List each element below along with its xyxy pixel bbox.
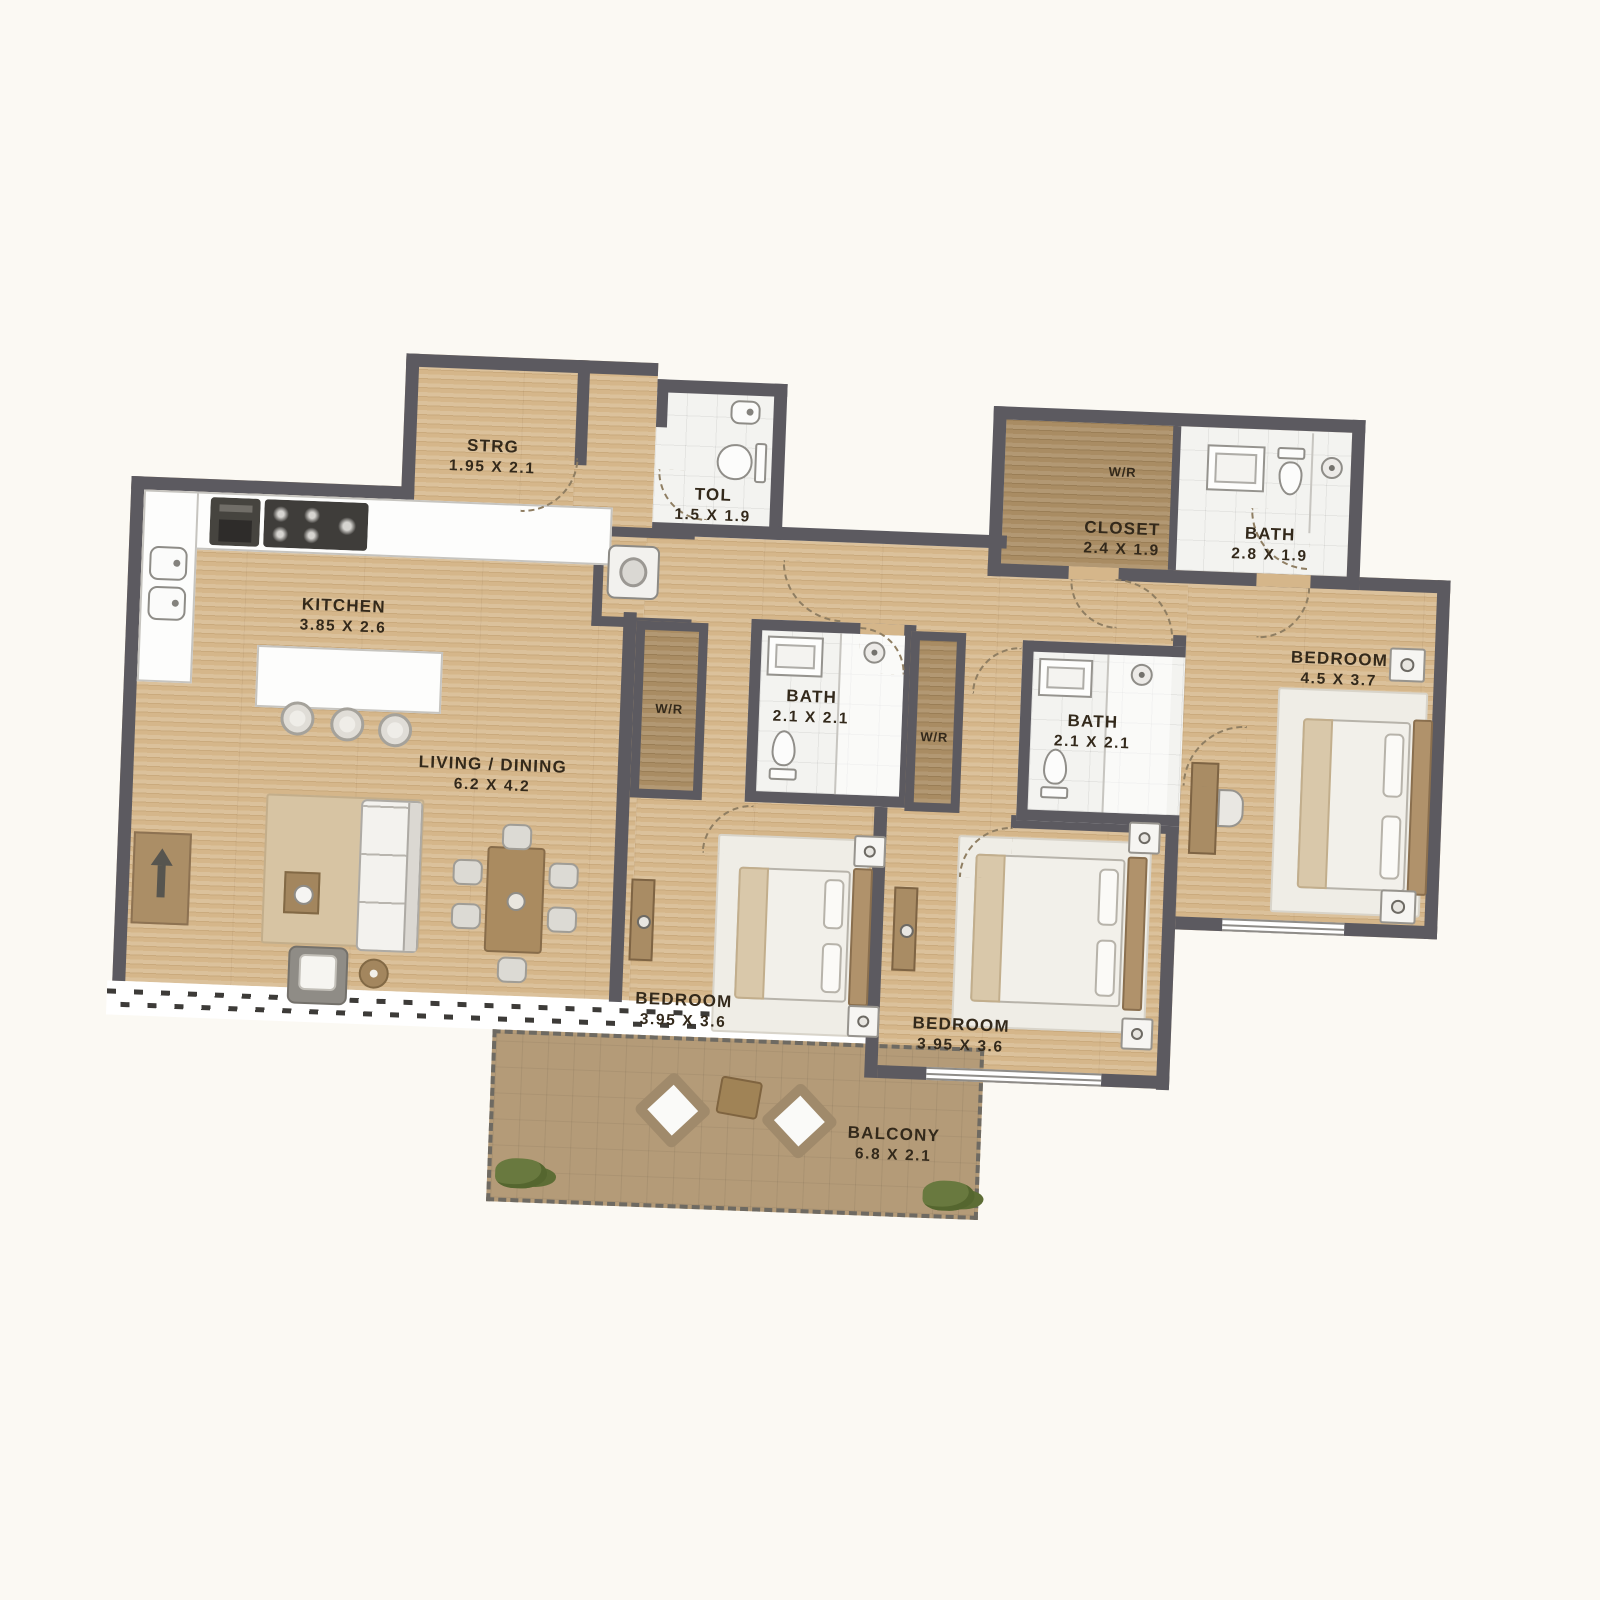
washer-icon [606, 544, 660, 600]
oven-icon [209, 497, 261, 547]
dining-chair [502, 823, 533, 850]
sink-icon [149, 546, 188, 581]
room-dims: 3.95 X 3.6 [634, 1010, 732, 1034]
room-dims: 4.5 X 3.7 [1290, 669, 1388, 693]
desk-chair [1217, 789, 1244, 828]
vanity-sink [766, 636, 823, 678]
coffee-table [283, 871, 321, 914]
room-label-wr-top: W/R [1108, 464, 1136, 482]
cooktop-icon [263, 499, 369, 551]
blanket [734, 867, 769, 1000]
toilet-icon [716, 441, 767, 483]
pillow [1097, 869, 1119, 926]
room-dims: 2.8 X 1.9 [1231, 544, 1308, 567]
room-label-bedroom-left: BEDROOM 3.95 X 3.6 [634, 988, 733, 1034]
room-dims: 1.95 X 2.1 [449, 456, 536, 479]
dining-chair [451, 903, 482, 930]
dresser [628, 878, 655, 961]
wardrobe-mid [904, 631, 966, 813]
floor-plan-canvas: STRG 1.95 X 2.1 TOL 1.5 X 1.9 W/R CLOSET… [0, 0, 1600, 1600]
room-name: W/R [655, 701, 683, 719]
vanity-sink [1038, 658, 1093, 698]
room-label-closet: CLOSET 2.4 X 1.9 [1083, 516, 1161, 561]
entry-mat [130, 831, 191, 925]
nightstand [853, 835, 886, 868]
room-label-bath-mid: BATH 2.1 X 2.1 [772, 685, 850, 730]
dining-chair [452, 859, 483, 886]
toilet-icon [768, 730, 798, 781]
room-dims: 3.95 X 3.6 [911, 1034, 1009, 1058]
room-name: W/R [1108, 464, 1136, 482]
room-name: TOL [675, 483, 752, 508]
pillow [1382, 733, 1404, 798]
toilet-icon [1040, 748, 1070, 799]
pillow [1094, 940, 1116, 997]
kitchen-island [255, 645, 443, 714]
sofa [356, 799, 424, 953]
room-dims: 2.1 X 2.1 [772, 707, 849, 730]
bed [734, 867, 873, 1004]
room-label-bath-ensuite: BATH 2.1 X 2.1 [1054, 709, 1132, 754]
room-name: BATH [1054, 709, 1131, 734]
entry-arrow-icon [151, 848, 174, 866]
room-label-bath-top: BATH 2.8 X 1.9 [1231, 522, 1309, 567]
room-dims: 3.85 X 2.6 [299, 616, 386, 639]
room-dims: 2.1 X 2.1 [1054, 732, 1131, 755]
vanity-sink [1206, 444, 1266, 492]
room-dims: 1.5 X 1.9 [674, 505, 751, 528]
balcony-table [715, 1075, 763, 1120]
room-name: CLOSET [1084, 516, 1161, 541]
dresser [891, 887, 918, 972]
room-label-wr-mid: W/R [920, 729, 948, 747]
room-label-toilet: TOL 1.5 X 1.9 [674, 483, 752, 528]
pillow [823, 879, 845, 930]
bed [1297, 718, 1433, 893]
pillow [1379, 815, 1401, 880]
dining-chair [548, 862, 579, 889]
nightstand [1379, 889, 1416, 924]
floor-plan: STRG 1.95 X 2.1 TOL 1.5 X 1.9 W/R CLOSET… [96, 343, 1460, 1242]
nightstand [1128, 822, 1161, 855]
room-dims: 2.4 X 1.9 [1083, 539, 1160, 562]
nightstand [1120, 1017, 1153, 1050]
room-label-bedroom-right: BEDROOM 3.95 X 3.6 [911, 1012, 1010, 1058]
room-label-storage: STRG 1.95 X 2.1 [449, 434, 537, 480]
entry-arrow-stem [157, 865, 166, 897]
room-dims: 6.8 X 2.1 [847, 1144, 940, 1168]
wall-segment [656, 379, 669, 427]
room-name: W/R [920, 729, 948, 747]
room-label-kitchen: KITCHEN 3.85 X 2.6 [299, 593, 387, 639]
armchair [287, 945, 349, 1005]
toilet-icon [1276, 447, 1306, 496]
sink-icon [147, 586, 186, 621]
room-name: BATH [773, 685, 850, 710]
dining-table [484, 846, 546, 954]
room-label-living-dining: LIVING / DINING 6.2 X 4.2 [418, 751, 568, 799]
dining-chair [546, 906, 577, 933]
room-name: BATH [1232, 522, 1309, 547]
dining-chair [496, 956, 527, 983]
sink-icon [730, 400, 761, 425]
nightstand [1389, 647, 1426, 682]
nightstand [847, 1005, 880, 1038]
pillow [820, 942, 842, 993]
room-label-balcony: BALCONY 6.8 X 2.1 [847, 1122, 941, 1168]
room-label-wr-left: W/R [655, 701, 683, 719]
room-label-bedroom-master: BEDROOM 4.5 X 3.7 [1290, 646, 1389, 692]
